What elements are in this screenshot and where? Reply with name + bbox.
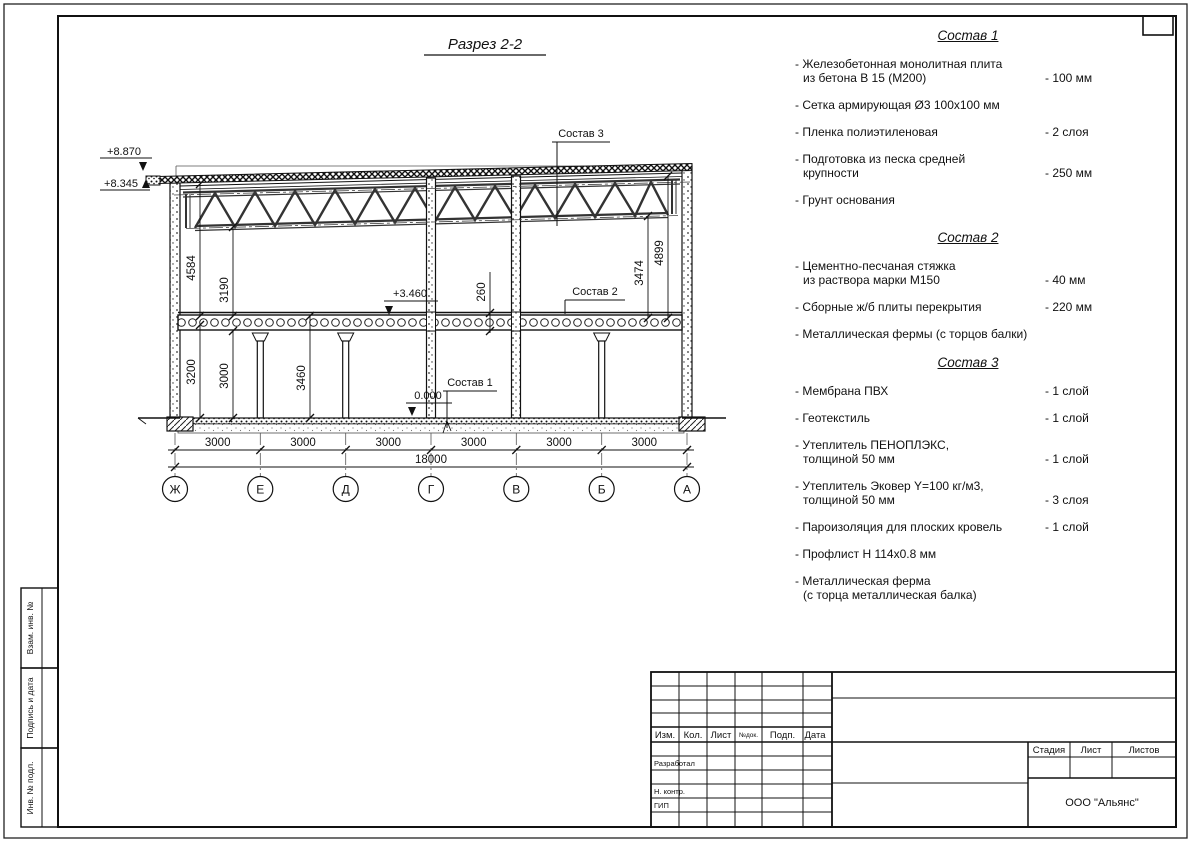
- ground-slab: [178, 418, 684, 424]
- wall-left: [170, 183, 180, 418]
- callout-sostav-3: Состав 3: [558, 128, 604, 140]
- axis-label-zh: Ж: [169, 483, 180, 497]
- foundation-right: [679, 417, 705, 431]
- tb-stage-list: Лист: [1081, 745, 1102, 756]
- item-text: - Металлическая ферма (с торца металличе…: [795, 574, 1045, 602]
- tb-col-ndok: №док.: [739, 732, 758, 739]
- callout-sostav-1: Состав 1: [447, 377, 493, 389]
- column-axis-v: [512, 176, 521, 418]
- span-dim-2: 3000: [290, 437, 316, 449]
- tb-col-list: Лист: [711, 730, 732, 741]
- composition-section-1: Состав 1 - Железобетонная монолитная пли…: [795, 28, 1141, 220]
- composition-section-3: Состав 3 - Мембрана ПВХ - 1 слой - Геоте…: [795, 355, 1141, 615]
- item-text: - Пленка полиэтиленовая: [795, 125, 1045, 139]
- list-item: - Утеплитель ПЕНОПЛЭКС, толщиной 50 мм -…: [795, 438, 1141, 466]
- item-value: - 2 слоя: [1045, 125, 1141, 139]
- item-text: - Сборные ж/б плиты перекрытия: [795, 300, 1045, 314]
- foundation-left: [167, 417, 193, 431]
- tb-stage-listov: Листов: [1129, 745, 1160, 756]
- axis-label-g: Г: [428, 483, 435, 497]
- span-dim-4: 3000: [461, 437, 487, 449]
- list-item: - Геотекстиль - 1 слой: [795, 411, 1141, 425]
- item-text: - Грунт основания: [795, 193, 1045, 207]
- list-item: - Железобетонная монолитная плита из бет…: [795, 57, 1141, 85]
- frame-sidebar: Взам. инв. № Подпись и дата Инв. № подл.: [21, 588, 58, 827]
- dim-3460: 3460: [296, 365, 308, 391]
- sidebar-label-podpis: Подпись и дата: [25, 677, 35, 738]
- item-text: - Подготовка из песка средней крупности: [795, 152, 1045, 180]
- dim-260: 260: [476, 282, 488, 301]
- elevation-eaves: +8.345: [104, 178, 138, 190]
- drawing-sheet: Взам. инв. № Подпись и дата Инв. № подл.: [0, 0, 1191, 842]
- axis-label-e: Е: [256, 483, 264, 497]
- list-item: - Металлическая фермы (с торцов балки): [795, 327, 1141, 341]
- axis-label-b: Б: [598, 483, 606, 497]
- axis-label-a: А: [683, 483, 691, 497]
- span-dim-3: 3000: [376, 437, 402, 449]
- item-text: - Металлическая фермы (с торцов балки): [795, 327, 1045, 341]
- tb-stage-stadia: Стадия: [1033, 745, 1065, 756]
- dim-4899: 4899: [654, 240, 666, 266]
- wall-right: [682, 165, 692, 418]
- item-text: - Геотекстиль: [795, 411, 1045, 425]
- span-dim-6: 3000: [632, 437, 658, 449]
- tb-role-razrabotal: Разработал: [654, 759, 695, 768]
- axis-label-d: Д: [342, 483, 350, 497]
- dim-3474: 3474: [634, 260, 646, 286]
- list-item: - Пленка полиэтиленовая - 2 слоя: [795, 125, 1141, 139]
- item-text: - Мембрана ПВХ: [795, 384, 1045, 398]
- bottom-dimensions: 3000 3000 3000 3000 3000 3000 18000: [168, 433, 694, 477]
- composition-1-title: Состав 1: [795, 28, 1141, 43]
- total-dim: 18000: [415, 454, 447, 466]
- axis-bubbles: Ж Е Д Г В Б А: [163, 477, 700, 502]
- item-value: - 1 слой: [1045, 411, 1141, 425]
- corner-inventory-box: [1143, 16, 1173, 35]
- tb-col-izm: Изм.: [655, 730, 675, 741]
- dim-3000-left: 3000: [219, 363, 231, 389]
- item-text: - Утеплитель Эковер Y=100 кг/м3, толщино…: [795, 479, 1045, 507]
- list-item: - Утеплитель Эковер Y=100 кг/м3, толщино…: [795, 479, 1141, 507]
- elevation-floor2: +3.460: [393, 288, 427, 300]
- item-value: - 1 слой: [1045, 452, 1141, 466]
- roof-left-cap: [146, 176, 160, 185]
- tb-col-podp: Подп.: [770, 730, 795, 741]
- span-dim-1: 3000: [205, 437, 231, 449]
- tb-role-gip: ГИП: [654, 801, 669, 810]
- item-value: - 40 мм: [1045, 273, 1141, 287]
- tb-col-kol: Кол.: [684, 730, 703, 741]
- tb-company: ООО "Альянс": [1065, 797, 1139, 809]
- axis-label-v: В: [512, 483, 520, 497]
- list-item: - Цементно-песчаная стяжка из раствора м…: [795, 259, 1141, 287]
- drawing-title: Разрез 2-2: [448, 36, 523, 53]
- span-dim-5: 3000: [546, 437, 572, 449]
- item-text: - Сетка армирующая Ø3 100х100 мм: [795, 98, 1045, 112]
- composition-3-title: Состав 3: [795, 355, 1141, 370]
- tb-col-data: Дата: [804, 730, 826, 741]
- item-value: - 220 мм: [1045, 300, 1141, 314]
- column-axis-g: [427, 178, 436, 418]
- list-item: - Сетка армирующая Ø3 100х100 мм: [795, 98, 1141, 112]
- list-item: - Пароизоляция для плоских кровель - 1 с…: [795, 520, 1141, 534]
- dim-3200: 3200: [186, 359, 198, 385]
- sand-bed: [178, 424, 684, 433]
- sidebar-label-vzam: Взам. инв. №: [25, 602, 35, 655]
- item-value: - 1 слой: [1045, 384, 1141, 398]
- list-item: - Мембрана ПВХ - 1 слой: [795, 384, 1141, 398]
- tb-role-nkontr: Н. контр.: [654, 787, 685, 796]
- composition-section-2: Состав 2 - Цементно-песчаная стяжка из р…: [795, 230, 1141, 354]
- item-text: - Железобетонная монолитная плита из бет…: [795, 57, 1045, 85]
- item-text: - Цементно-песчаная стяжка из раствора м…: [795, 259, 1045, 287]
- list-item: - Профлист Н 114х0.8 мм: [795, 547, 1141, 561]
- elevation-zero: 0.000: [414, 390, 442, 402]
- list-item: - Металлическая ферма (с торца металличе…: [795, 574, 1141, 602]
- list-item: - Подготовка из песка средней крупности …: [795, 152, 1141, 180]
- item-value: - 1 слой: [1045, 520, 1141, 534]
- dim-4584: 4584: [186, 255, 198, 281]
- item-value: - 100 мм: [1045, 71, 1141, 85]
- dim-3190: 3190: [219, 277, 231, 303]
- item-value: - 3 слоя: [1045, 493, 1141, 507]
- section-drawing: Разрез 2-2 +8.870 +8.345 +3.460 0.000 Со…: [100, 36, 726, 502]
- sidebar-label-inv: Инв. № подл.: [25, 762, 35, 815]
- item-text: - Утеплитель ПЕНОПЛЭКС, толщиной 50 мм: [795, 438, 1045, 466]
- item-text: - Профлист Н 114х0.8 мм: [795, 547, 1045, 561]
- list-item: - Грунт основания: [795, 193, 1141, 207]
- callout-sostav-2: Состав 2: [572, 286, 618, 298]
- item-value: - 250 мм: [1045, 166, 1141, 180]
- composition-2-title: Состав 2: [795, 230, 1141, 245]
- title-block: Изм. Кол. Лист №док. Подп. Дата Разработ…: [651, 672, 1176, 827]
- elevation-top: +8.870: [107, 146, 141, 158]
- list-item: - Сборные ж/б плиты перекрытия - 220 мм: [795, 300, 1141, 314]
- item-text: - Пароизоляция для плоских кровель: [795, 520, 1045, 534]
